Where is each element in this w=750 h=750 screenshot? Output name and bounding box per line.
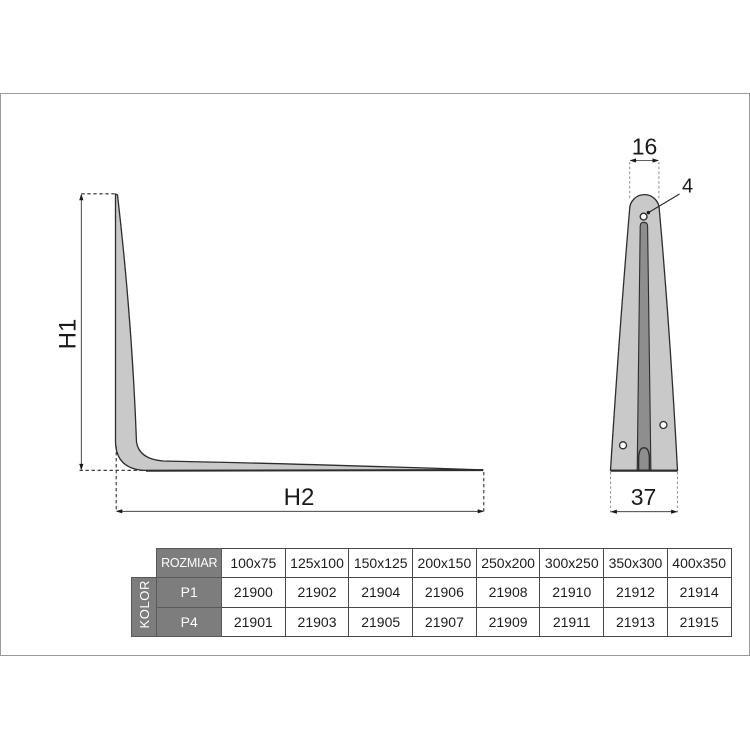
svg-text:37: 37 [631,484,657,510]
svg-text:H1: H1 [54,319,81,350]
svg-text:16: 16 [632,134,658,160]
svg-text:4: 4 [682,176,693,198]
svg-text:H2: H2 [284,484,315,511]
